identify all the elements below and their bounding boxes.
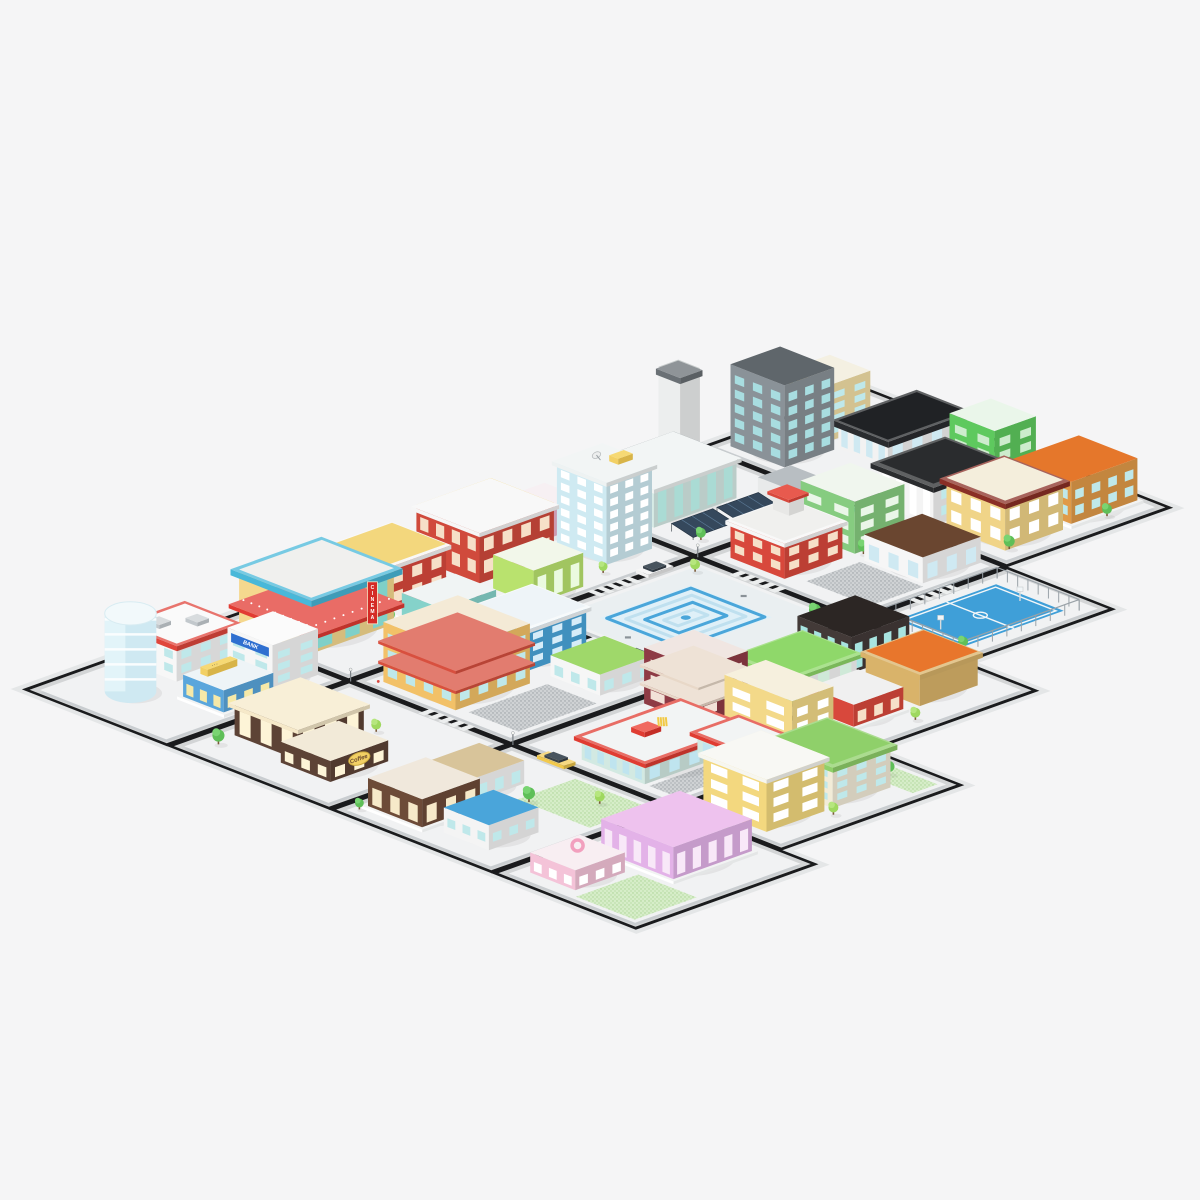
hydrant [377, 680, 380, 683]
svg-text:A: A [371, 615, 375, 621]
office-tower-gray [731, 347, 835, 468]
render-canvas: CINEMABANK· · ·Coffee CINEMA Coffee BANK… [0, 0, 1200, 1200]
city-3d-render: CINEMABANK· · ·Coffee [0, 0, 1200, 1200]
tv-glass-tower [552, 443, 657, 565]
glass-cylinder-tower [105, 602, 157, 703]
